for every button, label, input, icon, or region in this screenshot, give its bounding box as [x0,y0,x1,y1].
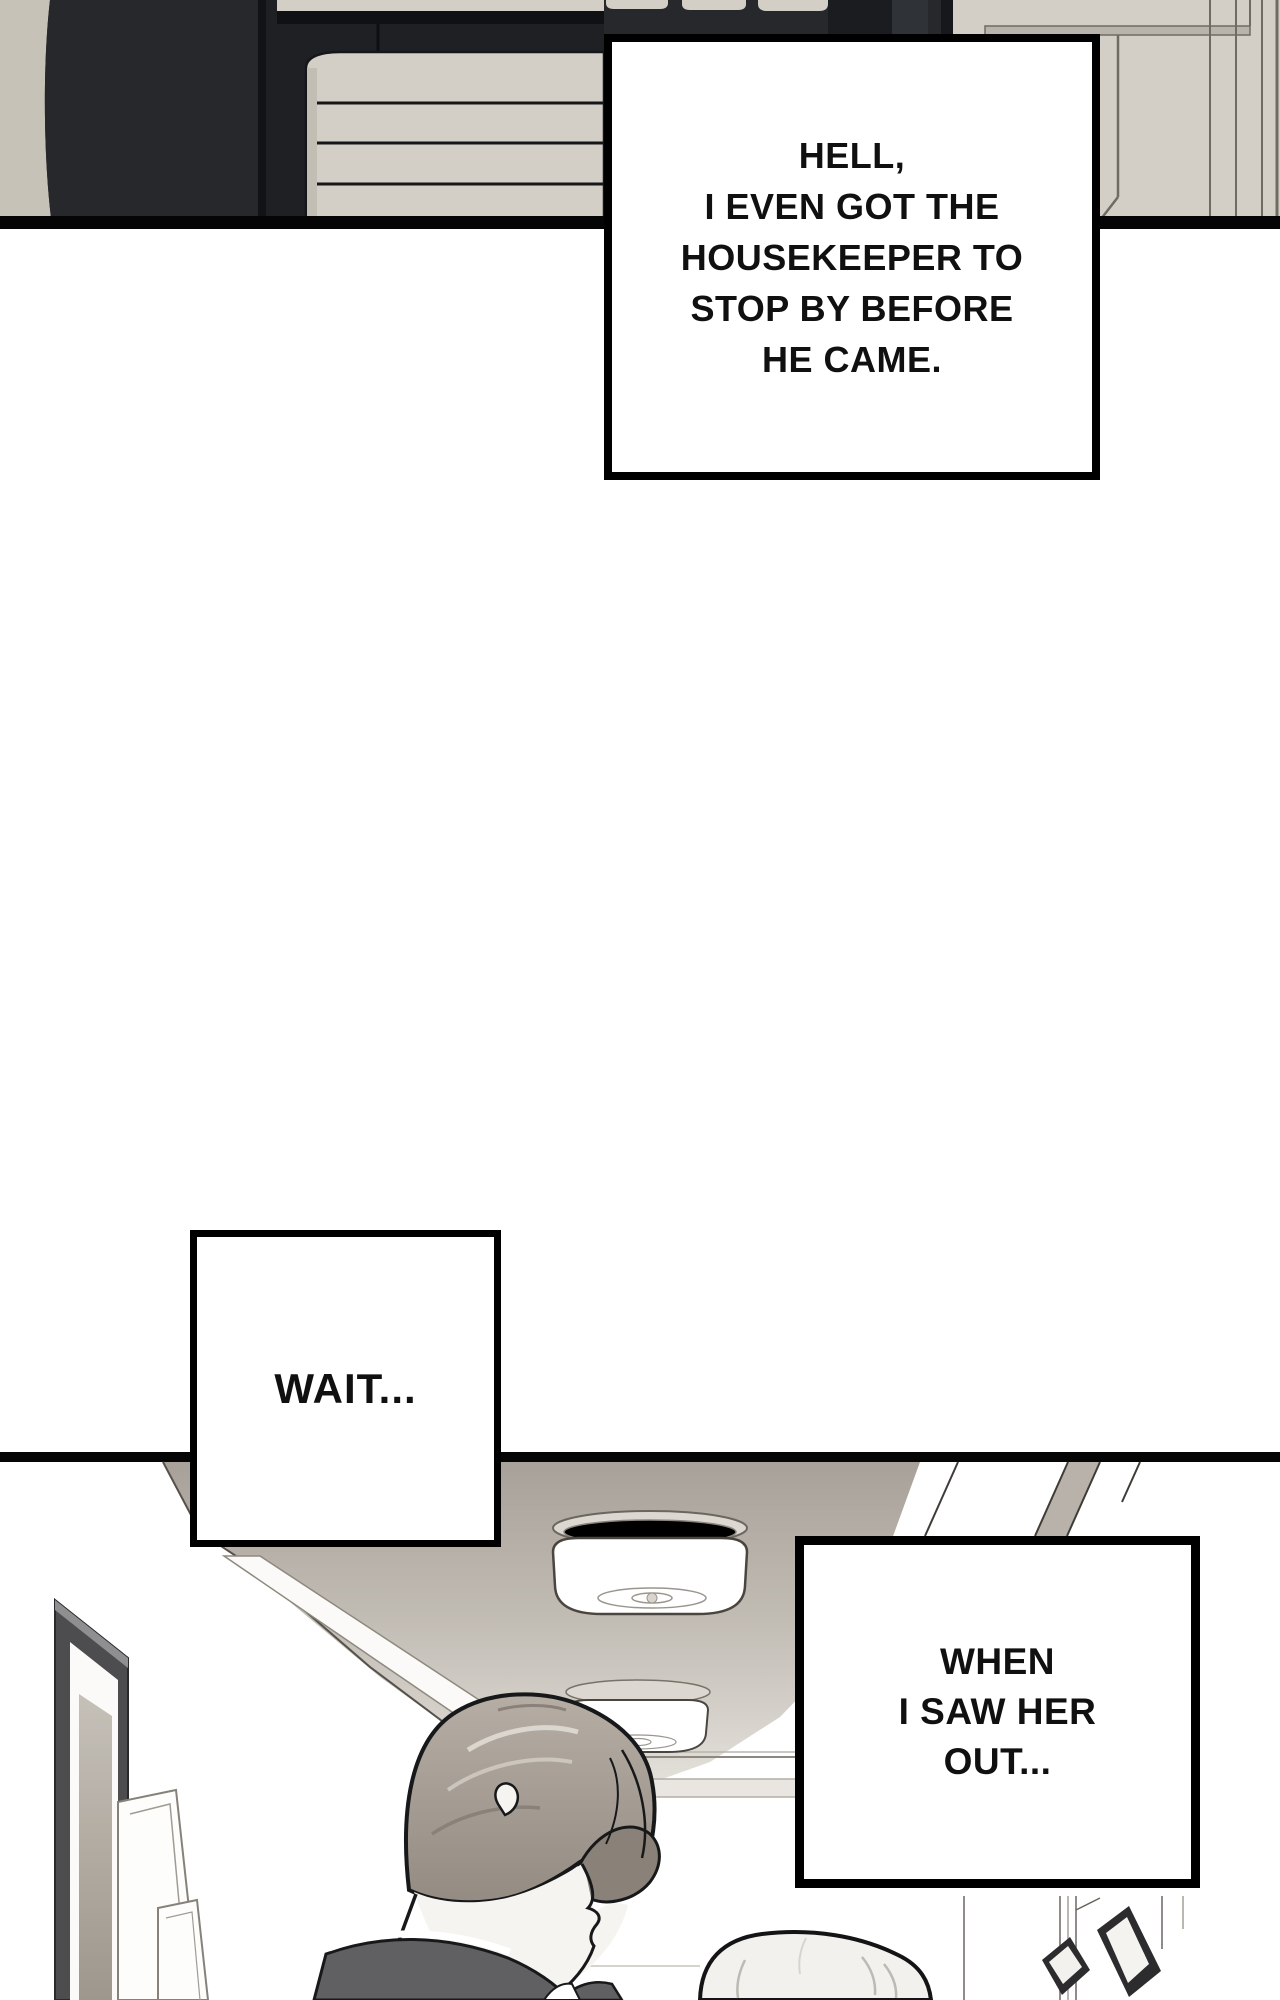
ceiling-slats [925,1462,1140,1536]
caption-box-saw-her-out: WHEN I SAW HER OUT... [795,1536,1200,1888]
towel-stack [306,52,604,218]
wardrobe-door [45,0,262,218]
ceiling-light-near [553,1511,747,1614]
upper-towel-2 [606,0,668,9]
hall-end-details [964,1896,1183,2000]
caption-box-housekeeper: HELL, I EVEN GOT THE HOUSEKEEPER TO STOP… [604,34,1100,480]
caption-box-wait: WAIT... [190,1230,501,1547]
wardrobe-door-edge [258,0,266,218]
webtoon-page: HELL, I EVEN GOT THE HOUSEKEEPER TO STOP… [0,0,1280,2000]
caption-line: WHEN [940,1637,1055,1687]
caption-line: HOUSEKEEPER TO [681,232,1023,283]
caption-line: I SAW HER [899,1687,1097,1737]
hallway-door-frames [118,1790,208,2000]
shelf-board-left [277,11,608,24]
caption-line: I EVEN GOT THE [704,181,999,232]
upper-towel-3 [682,0,746,10]
caption-line: HELL, [799,130,906,181]
upper-towel [277,0,604,11]
caption-line: OUT... [944,1737,1052,1787]
towel-stack-shade [307,68,317,217]
caption-line: HE CAME. [762,334,942,385]
left-wall-edge [0,0,51,218]
white-haired-person [700,1932,931,2000]
caption-line: WAIT... [274,1365,416,1413]
upper-towel-4 [758,0,828,11]
caption-line: STOP BY BEFORE [690,283,1013,334]
man-looking-down [314,1694,659,2000]
